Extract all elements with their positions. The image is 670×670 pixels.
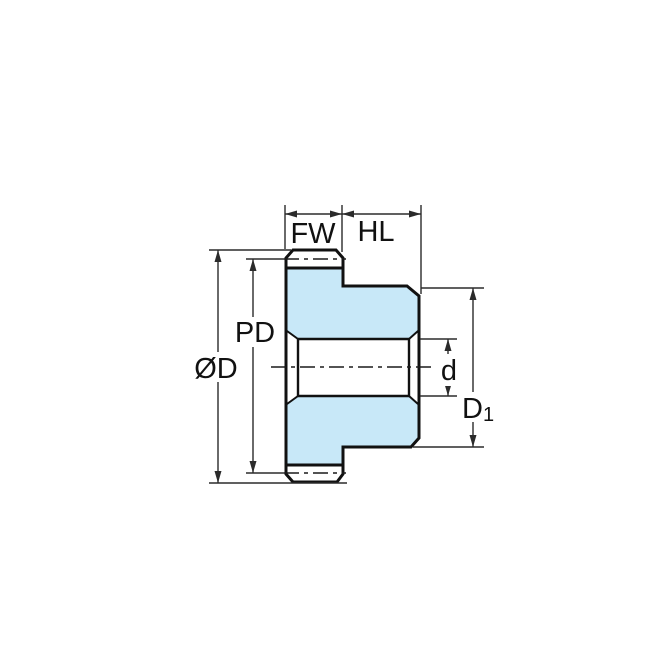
label-outside-diameter: ØD [194, 353, 238, 385]
label-hub-diameter-main: D [462, 393, 483, 425]
diagram-canvas: FW HL PD ØD d D1 [0, 0, 670, 670]
label-hub-length: HL [357, 216, 394, 248]
label-pitch-diameter: PD [235, 317, 275, 349]
label-bore-diameter: d [441, 355, 457, 387]
label-hub-diameter-subscript: 1 [483, 404, 494, 426]
gear-dimension-diagram: FW HL PD ØD d D1 [0, 0, 670, 670]
label-face-width: FW [290, 218, 336, 250]
